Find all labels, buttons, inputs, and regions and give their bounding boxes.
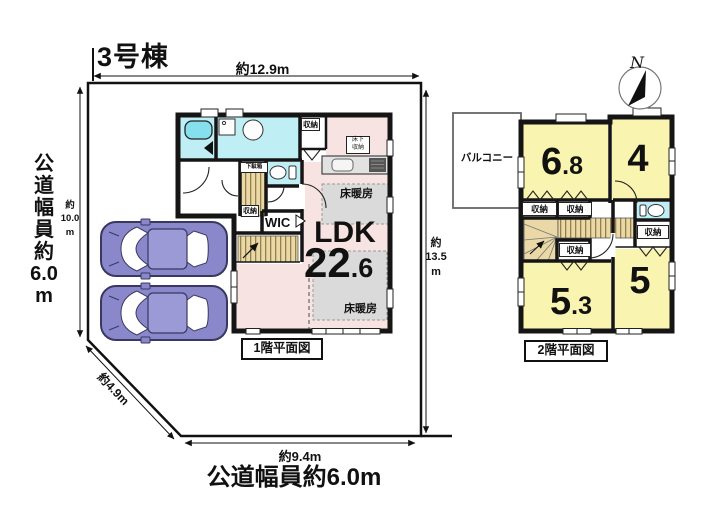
balcony-label: バルコニー <box>453 150 521 165</box>
floor1-closet-entry-label: 収納 <box>241 205 259 217</box>
car-1 <box>101 219 227 279</box>
road-width-bottom-label: 公道幅員約6.0m <box>158 457 430 492</box>
toilet-bowl-1f <box>270 166 286 179</box>
car-2 <box>101 283 227 343</box>
room-5-3-int: 5 <box>550 283 571 321</box>
room-6-8-size: 6 .8 <box>541 143 583 181</box>
floor2-closet-b-label: 収納 <box>558 202 592 216</box>
ldk-size: 22 .6 <box>304 242 373 284</box>
room-6-8-int: 6 <box>541 143 562 181</box>
compass <box>619 67 661 109</box>
floor-heating-lower-label: 床暖房 <box>344 300 377 316</box>
washing-machine <box>219 119 235 135</box>
room-4-size: 4 <box>618 140 658 178</box>
floor2-caption: 2階平面図 <box>524 340 608 362</box>
room-6-8-dec: .8 <box>562 154 583 179</box>
dim-right-label: 約 13.5 m <box>419 236 453 279</box>
underfloor-storage-label: 床下 収納 <box>346 136 370 154</box>
floor1-caption: 1階平面図 <box>241 338 323 360</box>
toilet-bowl-2f <box>648 205 664 217</box>
compass-north-label: N <box>630 53 644 72</box>
floor1-closet-top-label: 収納 <box>301 118 320 131</box>
shoe-cabinet-label: 下駄箱 <box>240 162 268 173</box>
ldk-size-dec: .6 <box>351 255 374 282</box>
room-5-size: 5 <box>621 262 659 300</box>
dim-top-label: 約12.9m <box>200 59 325 79</box>
road-width-left-label: 公 道 幅 員 約 6.0 m <box>24 153 64 307</box>
ldk-size-int: 22 <box>304 242 351 284</box>
stove <box>369 158 386 172</box>
stairs-1f <box>238 236 298 262</box>
floor-heating-upper-label: 床暖房 <box>340 185 373 201</box>
floorplan-page: 3号棟 約12.9m 約 10.0 m 公 道 幅 員 約 6.0 m 約 13… <box>0 0 705 525</box>
floor2-closet-d-label: 収納 <box>637 225 669 239</box>
stairs-run-2f <box>558 218 634 238</box>
page-title: 3号棟 <box>97 35 169 74</box>
wic-label: WIC <box>265 215 290 230</box>
room-5-3-dec: .3 <box>571 294 592 319</box>
floor2-closet-c-label: 収納 <box>559 243 591 257</box>
sink <box>243 120 263 140</box>
floor2-closet-a-label: 収納 <box>522 202 557 216</box>
room-5-3-size: 5 .3 <box>550 283 592 321</box>
bathtub <box>185 121 212 139</box>
